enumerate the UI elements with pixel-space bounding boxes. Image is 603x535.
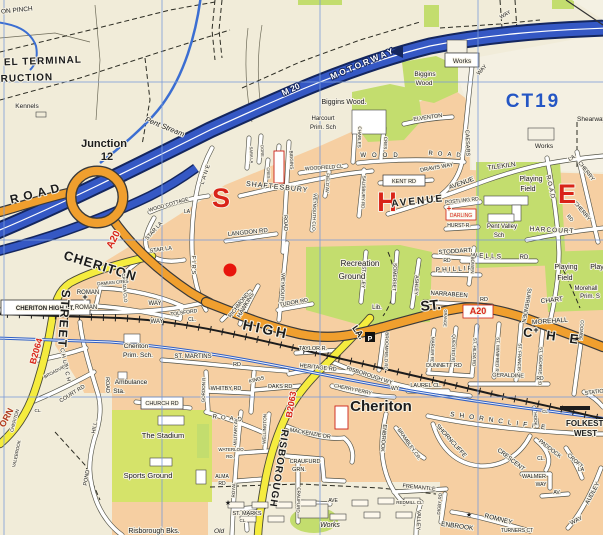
road-vert-biggins-label: ROAD	[282, 215, 289, 231]
whitby-rd-label: WHITBY RD	[211, 386, 242, 392]
harcourt-sch-1-label: Harcourt	[311, 116, 334, 122]
junction-label: Junction	[81, 138, 127, 150]
biggins-wood-1a-label: Biggins	[414, 71, 436, 78]
shearway-label: Shearway	[577, 116, 603, 123]
folkestone-west-2-label: WEST	[574, 429, 597, 438]
craufurd-v-label: CRAUFURD	[296, 487, 302, 513]
wy-label: WY	[391, 386, 400, 392]
harcourt-sch-2-label: Prim. Sch	[310, 125, 336, 131]
st-marks-label: ST. MARKS	[232, 511, 261, 517]
kent-rd-label: KENT RD	[392, 179, 416, 185]
st-marks-cl-label: CL.	[239, 518, 246, 523]
map-canvas: ON PINCHEL TERMINALRUCTIONKennelsPent St…	[0, 0, 603, 535]
star-1-label: ★	[225, 499, 231, 507]
ruction-label: RUCTION	[0, 72, 53, 85]
oaks-rd-label: OAKS RD	[268, 384, 293, 390]
waterloo-label: WATERLOO	[218, 447, 244, 452]
walmer-way-label: WAY	[536, 482, 547, 488]
craufurd-ave-label: AVE	[328, 498, 338, 504]
quested-rd-label: QUESTED RD	[450, 334, 456, 364]
works-bottom-label: Works	[320, 522, 340, 529]
harcourt-school-building	[352, 110, 386, 134]
bowen-label: BOWEN	[470, 256, 476, 273]
somerset-label: SOMERSET	[391, 263, 398, 291]
pent-valley-1-label: Pent Valley	[487, 224, 517, 230]
sports-ground-label: Sports Ground	[124, 471, 173, 480]
church-cross-1-label: +	[82, 292, 87, 302]
wellington-label: WELLINGTON	[261, 414, 267, 444]
hook-label: HOOK	[533, 412, 538, 425]
ct19-label: CT19	[506, 91, 560, 112]
recreation-2-label: Ground	[339, 272, 366, 281]
alma-rd-label: RD	[218, 481, 226, 487]
roman-1-label: ROMAN	[77, 290, 99, 296]
redmill-cl-label: REDMILL CL.	[396, 500, 424, 505]
works-right-label: Works	[535, 143, 554, 150]
st-big-label: ST.	[420, 296, 442, 314]
wells-rd-label: RD	[520, 255, 529, 261]
ashley-label: ASHLEY	[413, 275, 420, 296]
cheriton-prim-1-label: Cheriton	[124, 343, 149, 350]
charles-label: CHARLES	[357, 126, 363, 147]
av-label: AV.	[553, 490, 560, 496]
the-stadium-label: The Stadium	[142, 431, 185, 440]
valley-label: VALLEY	[415, 510, 422, 531]
grange-label: GRANGE	[443, 309, 449, 327]
sara-la-label: SARA LA	[249, 147, 255, 164]
playing-field-2a-label: Playing	[555, 264, 578, 271]
st-martins-label: ST. MARTINS	[174, 354, 211, 360]
map-screenshot: ON PINCHEL TERMINALRUCTIONKennelsPent St…	[0, 0, 603, 535]
morehall-prim-1-label: Morehall	[574, 286, 597, 292]
st-hilda-rd-label: ST. HILDA RD	[471, 338, 477, 367]
road-vert-3-label: ROAD	[104, 377, 111, 393]
biggins-vert-label: BIGGINS	[289, 150, 295, 169]
weymouth-label: WEYMOUTH	[278, 273, 285, 303]
p-sign-label: P	[368, 336, 373, 343]
darling-label: DARLING	[450, 213, 472, 219]
walmer-label: WALMER	[522, 474, 546, 480]
red-street-box-1	[274, 151, 284, 183]
risborough-bks-label: Risborough Bks.	[128, 528, 179, 535]
st-martins-rd-label: RD	[233, 362, 241, 368]
geraldine-label: GERALDINE	[492, 372, 524, 379]
biggins-wood-2-label: Biggins Wood.	[321, 99, 366, 106]
old-label: Old	[214, 528, 225, 535]
charles-cres-label: CRES	[383, 137, 388, 150]
playing-field-3-label: Play	[590, 264, 603, 271]
playing-field-1a-label: Playing	[520, 176, 543, 183]
way-2-label: WAY	[151, 319, 164, 325]
cheriton-cl-label: CL.	[34, 408, 41, 413]
church-cross-2-label: +	[447, 204, 452, 213]
royal-label: ROYAL	[231, 482, 237, 498]
star-3-label: ★	[466, 511, 472, 519]
biggins-wood-1b-label: Wood	[416, 80, 433, 87]
ambulance-2-label: Sta.	[113, 388, 125, 395]
playing-field-1b-label: Field	[520, 186, 535, 193]
wood-cottage-la-label: LA	[184, 209, 191, 215]
hook-cl-label: CL	[542, 409, 548, 414]
folkestone-west-station-platform	[560, 406, 590, 410]
dore-label: DORE	[260, 145, 265, 157]
narrabeen-rd-label: RD	[480, 297, 488, 303]
lib-label: Lib.	[372, 305, 382, 311]
morehall-prim-2-label: Prim. S	[580, 294, 600, 300]
marler-rd-label: MARLER RD	[430, 337, 436, 364]
field-av-label: FIELD AV	[325, 173, 331, 193]
junction-12-label: 12	[101, 151, 113, 163]
waterloo-rd-label: RD.	[226, 454, 234, 459]
star-2-label: ★	[574, 335, 580, 343]
hurst-r-label: HURST R.	[447, 223, 471, 229]
gordon-r-label: GORDON R	[201, 377, 207, 403]
geraldine-rd-label: RD	[536, 376, 544, 382]
craufurd-1-label: CRAUFURD	[290, 459, 321, 465]
paddock-cl-label: CL.	[537, 456, 545, 462]
pent-valley-2-label: Sch	[494, 233, 504, 239]
cres-2-label: CRES	[266, 167, 271, 179]
firs-label: FIRS	[190, 256, 196, 277]
church-cross-3-label: +	[533, 325, 538, 335]
church-rd-box-label: CHURCH RD	[145, 401, 178, 407]
military-av-label: MILITARY AV	[233, 418, 239, 445]
big-e-label: E	[558, 179, 576, 209]
wood-spread-label: WOOD	[360, 153, 403, 159]
big-s-label: S	[212, 183, 230, 213]
cheriton-big-label: Cheriton	[350, 398, 412, 415]
way-1-label: WAY	[149, 301, 162, 307]
roman-2-label: ROMAN	[75, 305, 97, 311]
dunnett-rd-label: DUNNETT RD	[426, 363, 462, 369]
ambulance-1-label: Ambulance	[115, 379, 148, 386]
cheriton-prim-2-label: Prim. Sch.	[123, 352, 153, 359]
tolsford-cl-label: CL.	[188, 317, 196, 323]
taylor-r-label: TAYLOR R.	[299, 346, 328, 352]
works-top-label: Works	[453, 58, 472, 65]
point-symbols-layer	[224, 264, 237, 277]
craufurd-2-label: GRN.	[292, 467, 306, 473]
laurel-cl-label: LAUREL CL.	[410, 383, 442, 389]
red-dot-marker	[224, 264, 237, 277]
a20-east-label: A20	[470, 306, 487, 316]
croft-la-label: LA	[578, 467, 585, 473]
turners-ct-label: TURNERS CT	[501, 528, 533, 534]
kennels-label: Kennels	[15, 103, 39, 110]
alma-label: ALMA	[215, 474, 229, 480]
red-street-box-2	[335, 406, 348, 429]
folkestone-west-1-label: FOLKESTONE	[566, 419, 603, 428]
playing-field-2b-label: Field	[557, 275, 572, 282]
recreation-1-label: Recreation	[341, 259, 380, 268]
stoddart-rd-label: RD	[443, 258, 451, 264]
